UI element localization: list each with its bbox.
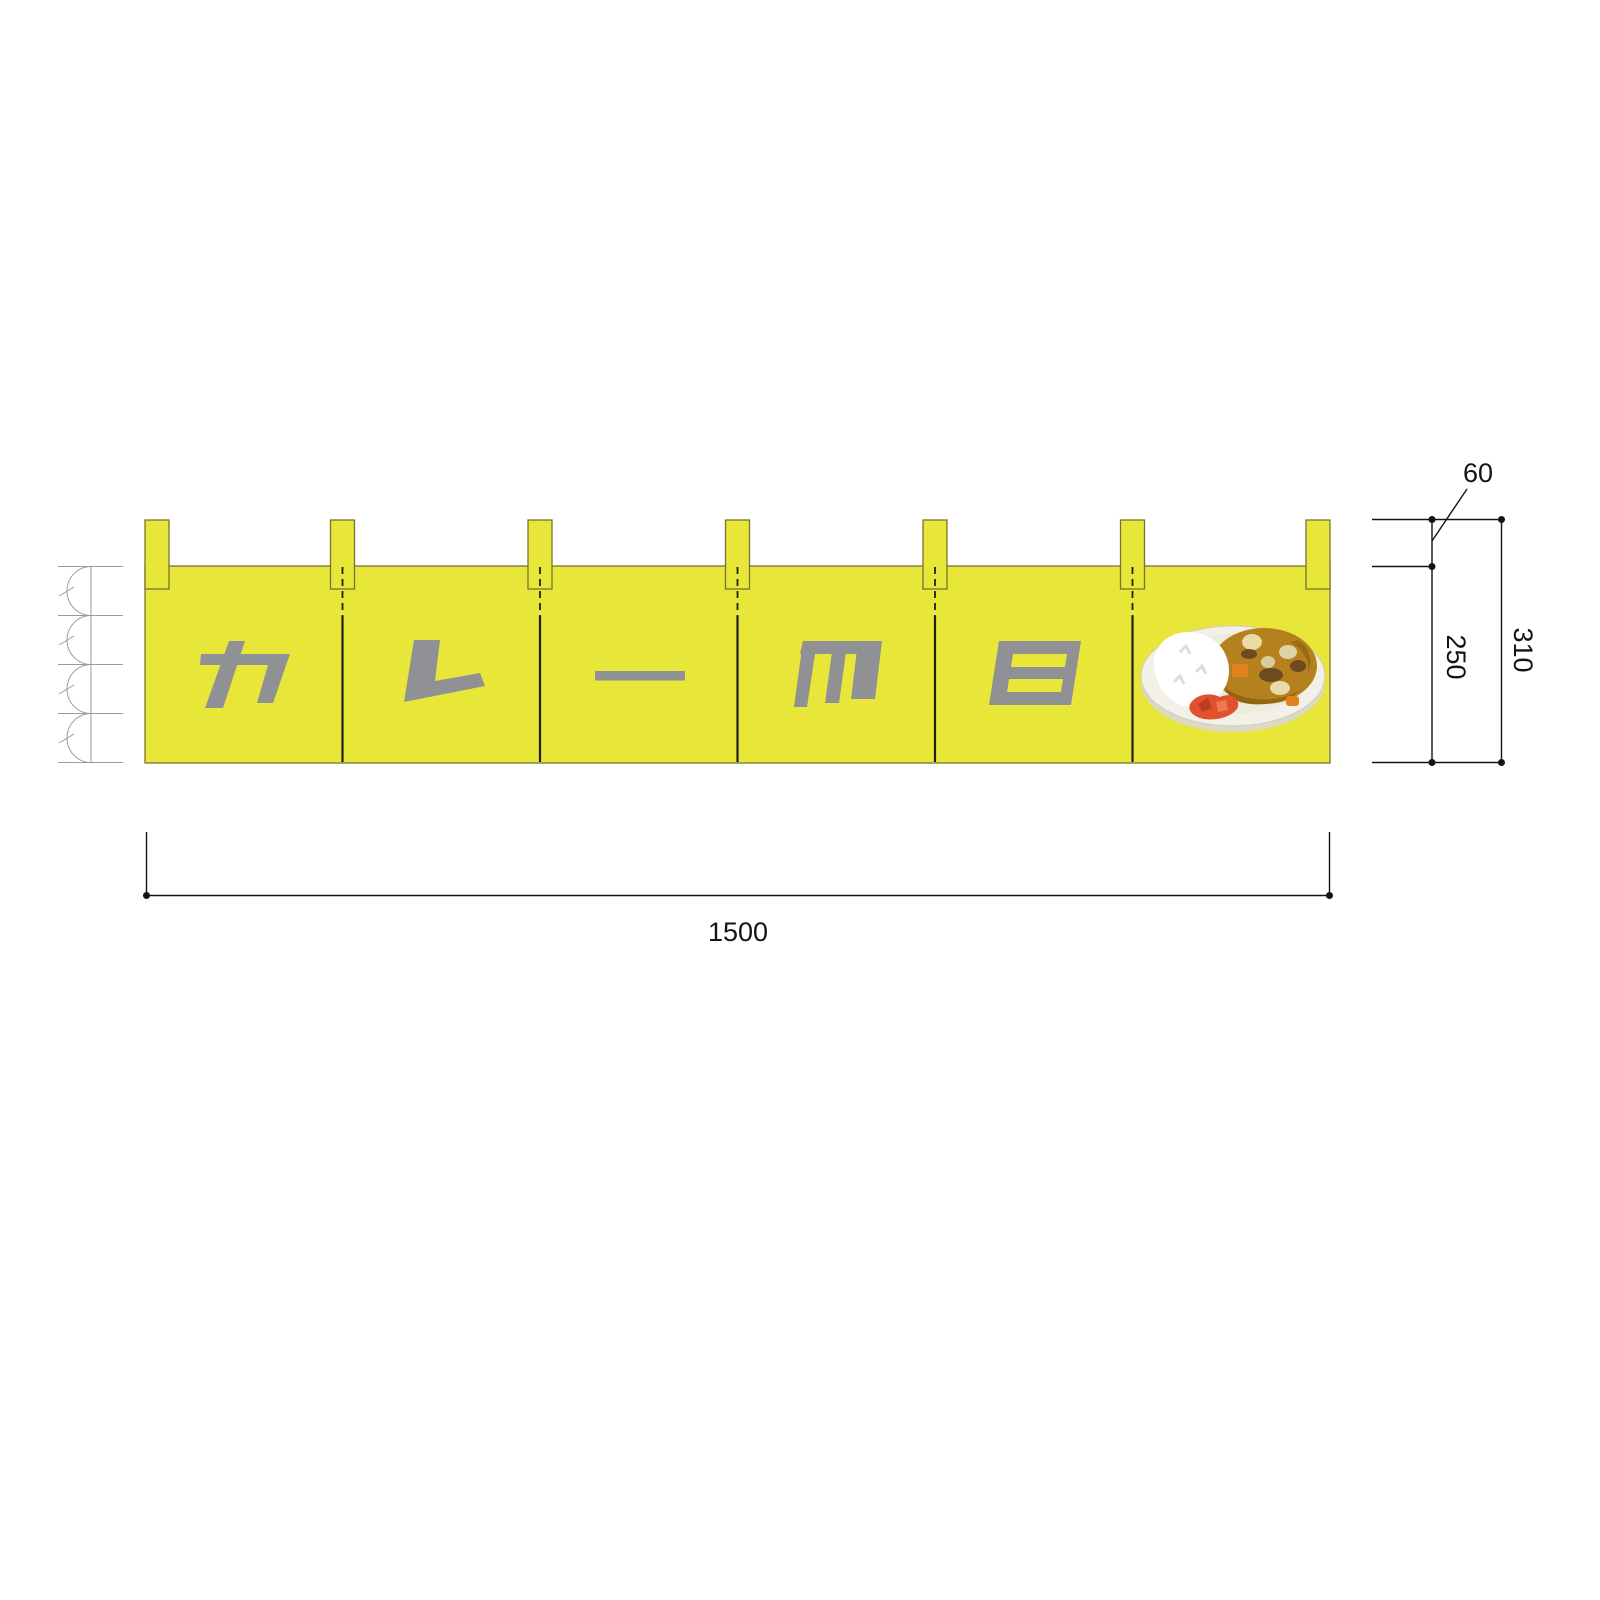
curry-plate-illustration — [1141, 626, 1325, 732]
banner-glyph-choon — [595, 671, 685, 681]
body-height-dimension-label: 250 — [1441, 634, 1471, 679]
dimension-body-height: 250 — [1429, 516, 1472, 766]
tab-height-dimension-label: 60 — [1463, 458, 1493, 488]
dimension-width: 1500 — [143, 832, 1333, 947]
tab — [528, 520, 552, 589]
dimension-heights: 60 250 310 — [1372, 458, 1538, 766]
noren-curtain — [145, 520, 1330, 763]
tab — [923, 520, 947, 589]
tab — [145, 520, 169, 589]
tab — [331, 520, 355, 589]
noren-spec-drawing: 1500 60 250 310 — [0, 0, 1600, 1600]
banner-glyph-no — [794, 641, 882, 707]
dimension-tab-height: 60 — [1432, 458, 1493, 541]
total-height-dimension-label: 310 — [1508, 627, 1538, 672]
banner-glyph-hi — [989, 641, 1081, 705]
equal-division-symbol — [58, 567, 123, 763]
drawing-canvas: 1500 60 250 310 — [0, 0, 1600, 1600]
width-dimension-label: 1500 — [708, 917, 768, 947]
dimension-total-height: 310 — [1498, 516, 1538, 766]
tab — [1121, 520, 1145, 589]
tab — [726, 520, 750, 589]
tab — [1306, 520, 1330, 589]
